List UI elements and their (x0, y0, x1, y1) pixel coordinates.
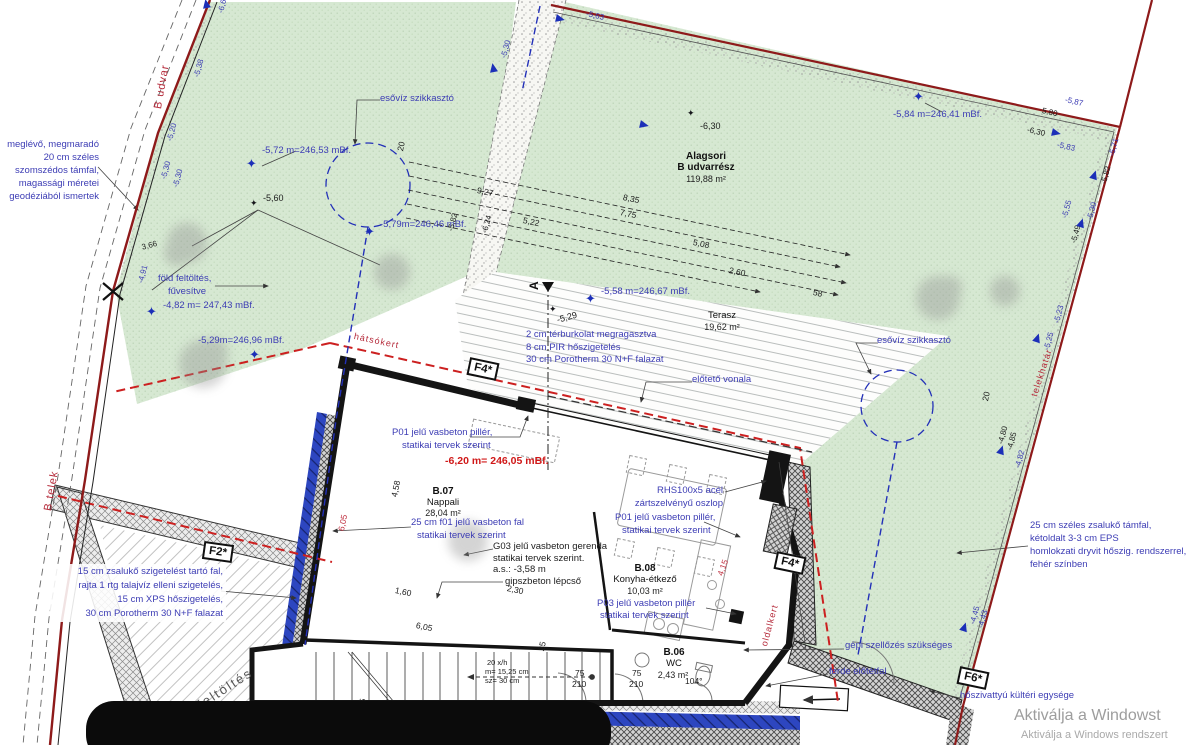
door-dimension: 210 (629, 680, 643, 689)
spot-elevation-label: -6,30 (1026, 126, 1046, 138)
note-pillar-p01b: P01 jelű vasbeton pillér, (615, 513, 715, 523)
spot-elevation-label: -5,23 (1053, 304, 1065, 324)
note-beam-g03: G03 jelű vasbeton gerendastatikai tervek… (493, 541, 607, 587)
note-soakaway: esővíz szikkasztó (877, 336, 951, 346)
note-wall-f01: 25 cm f01 jelű vasbeton fal (411, 518, 524, 528)
note-pillar-p03: P03 jelű vasbeton pillér (597, 599, 695, 609)
detail-marker-f6: F6* (956, 666, 989, 690)
room-area: 2,43 m² (658, 671, 689, 680)
elevation-label: -5,29 (556, 311, 578, 325)
survey-flag-icon (996, 444, 1006, 455)
detail-marker-f4: F4* (466, 357, 499, 381)
stair-note: m= 15,25 cm (485, 668, 529, 676)
note-canopy: előtető vonala (692, 375, 751, 385)
courtyard-name2: B udvarrész (677, 163, 734, 173)
boundary-label-plot: B telek (43, 470, 61, 512)
survey-flag-icon (1089, 169, 1099, 180)
spot-elevation-label: -5,38 (193, 58, 205, 78)
terrace-area: 19,62 m² (704, 323, 740, 332)
note-soakaway: esővíz szikkasztó (380, 94, 454, 104)
angle-label: 104° (685, 677, 703, 686)
note-pillar-p03: statikai tervek szerint (600, 611, 689, 621)
spot-elevation-label: -5,63 (585, 10, 605, 22)
dimension-label: 20 (396, 141, 406, 152)
dimension-label: 20 (981, 391, 991, 402)
windows-activation-watermark-sub: Aktiválja a Windows rendszert (1021, 730, 1168, 741)
dimension-label: 58 (812, 288, 823, 298)
dimension-label: 5,08 (692, 238, 710, 250)
note-sloped-wall: ferde előtétfal (829, 667, 887, 677)
elevation-label: -5,58 m=246,67 mBf. (601, 287, 690, 297)
room-id: B.08 (634, 564, 655, 574)
spot-star-icon (250, 200, 258, 209)
terrace-name: Terasz (708, 311, 736, 321)
elevation-star-icon (913, 91, 924, 104)
dimension-label: 4,58 (390, 480, 402, 498)
spot-elevation-label: -5,83 (1056, 141, 1076, 153)
survey-flag-icon (201, 0, 210, 9)
room-area: 10,03 m² (627, 587, 663, 596)
elevation-label: -6,30 (700, 122, 721, 131)
elevation-star-icon (246, 158, 257, 171)
survey-flag-icon (639, 120, 650, 130)
elevation-star-icon (585, 293, 596, 306)
dimension-label: 7,75 (619, 208, 637, 220)
dimension-label: 9,27 (476, 186, 494, 198)
spot-elevation-label: -5,30 (500, 39, 512, 59)
detail-marker-f4b: F4* (773, 551, 806, 575)
spot-elevation-label: -5,55 (1061, 199, 1073, 219)
elevation-label: -5,72 m=246,53 mBf. (262, 146, 351, 156)
spot-elevation-label: -6,24 (481, 214, 493, 234)
note-retaining-right: 25 cm széles zsalukő támfal,kétoldalt 3-… (1030, 519, 1186, 571)
dimension-label: 6,05 (337, 514, 349, 532)
spot-elevation-label: -4,85 (1006, 431, 1018, 451)
door-dimension: 75 (632, 669, 641, 678)
bottom-overlay-bar[interactable] (86, 701, 611, 745)
section-marker-label: A (528, 281, 540, 290)
survey-flag-icon (959, 621, 969, 632)
detail-marker-f2: F2* (202, 541, 234, 563)
note-pillar-p01b: statikai tervek szerint (622, 526, 711, 536)
note-heat-pump: hőszivattyú kültéri egysége (960, 691, 1074, 701)
spot-star-icon (549, 306, 557, 315)
spot-elevation-label: -4,91 (137, 264, 149, 284)
note-rhs-column: RHS100x5 acélzártszelvényű oszlop (633, 484, 723, 510)
boundary-label-property-line: telekhatár (1030, 348, 1054, 398)
note-existing-wall: meglévő, megmaradó20 cm széles szomszédo… (0, 138, 99, 203)
site-plan-screenshot: Alagsori B udvarrész 119,88 m² Terasz 19… (0, 0, 1200, 745)
room-name: Konyha-étkező (613, 575, 676, 585)
stair-note: 20 x/h (487, 659, 507, 667)
door-dimension: 210 (572, 680, 586, 689)
courtyard-name: Alagsori (686, 152, 726, 162)
labels-layer: Alagsori B udvarrész 119,88 m² Terasz 19… (0, 0, 1200, 745)
spot-elevation-label: -5,30 (1086, 201, 1098, 221)
room-id: B.07 (432, 487, 453, 497)
survey-flag-icon (555, 14, 566, 24)
dimension-label: 2,30 (506, 584, 524, 596)
spot-elevation-label: -5,20 (166, 122, 178, 142)
survey-flag-icon (1051, 128, 1062, 138)
dimension-label: 8,35 (622, 193, 640, 205)
survey-flag-icon (488, 62, 497, 72)
survey-flag-icon (1032, 332, 1042, 343)
note-wall-f01: statikai tervek szerint (417, 531, 506, 541)
windows-activation-watermark: Aktiválja a Windowst (1014, 708, 1161, 724)
elevation-star-icon (364, 226, 375, 239)
elevation-label: -5,29m=246,96 mBf. (198, 336, 284, 346)
boundary-label-street: B udvar (153, 64, 172, 110)
elevation-label: -5,60 (263, 194, 284, 203)
door-dimension: 75 (575, 669, 584, 678)
note-pillar-p01: P01 jelű vasbeton pillér, (392, 428, 492, 438)
elevation-star-icon (146, 306, 157, 319)
courtyard-area: 119,88 m² (686, 175, 726, 184)
note-retaining-left: 15 cm zsalukő szigetelést tartó fal,rajt… (50, 564, 226, 622)
room-name: Nappali (427, 498, 459, 508)
spot-elevation-label: -5,87 (1064, 96, 1084, 108)
dimension-label: 25 (537, 641, 547, 652)
note-pillar-p01: statikai tervek szerint (402, 441, 491, 451)
elevation-label: -5,84 m=246,41 mBf. (893, 110, 982, 120)
spot-elevation-label: 5,80 (1041, 107, 1058, 118)
spot-star-icon (687, 110, 695, 119)
spot-elevation-label: -5,30 (172, 168, 184, 188)
survey-flag-icon (1076, 217, 1086, 228)
dimension-label: 4,15 (716, 558, 730, 576)
boundary-label-side-garden: oldalkert (760, 603, 780, 647)
stair-note: sz= 30 cm (485, 677, 519, 685)
spot-elevation-label: -5,82 (1100, 165, 1112, 185)
spot-elevation-label: 3,66 (141, 240, 158, 252)
note-terrace-layers: 2 cm térburkolat megragasztva8 cm PIR hő… (526, 329, 664, 367)
elevation-label: -4,82 m= 247,43 mBf. (163, 301, 255, 311)
dimension-label: 6,05 (415, 621, 433, 633)
room-id: B.06 (663, 648, 684, 658)
dimension-label: 2,60 (728, 266, 746, 278)
note-ventilation: gépi szellőzés szükséges (845, 641, 952, 651)
elevation-star-icon (249, 349, 260, 362)
dimension-label: 5,22 (522, 216, 540, 228)
spot-elevation-label: -4,82 (1014, 449, 1026, 469)
boundary-label-rear-garden: hátsókert (353, 332, 400, 350)
spot-elevation-label: -5,71 (1108, 137, 1120, 157)
main-elevation-label: -6,20 m= 246,05 mBf. (445, 456, 549, 467)
spot-elevation-label: -5,30 (160, 160, 172, 180)
spot-elevation-label: -6,62 (217, 0, 229, 14)
spot-elevation-label: -4,43 (977, 609, 989, 629)
room-name: WC (666, 659, 682, 669)
note-earth-fill: fűvesítve (168, 287, 206, 297)
dimension-label: 1,60 (394, 586, 412, 598)
note-earth-fill: föld feltöltés, (158, 274, 211, 284)
